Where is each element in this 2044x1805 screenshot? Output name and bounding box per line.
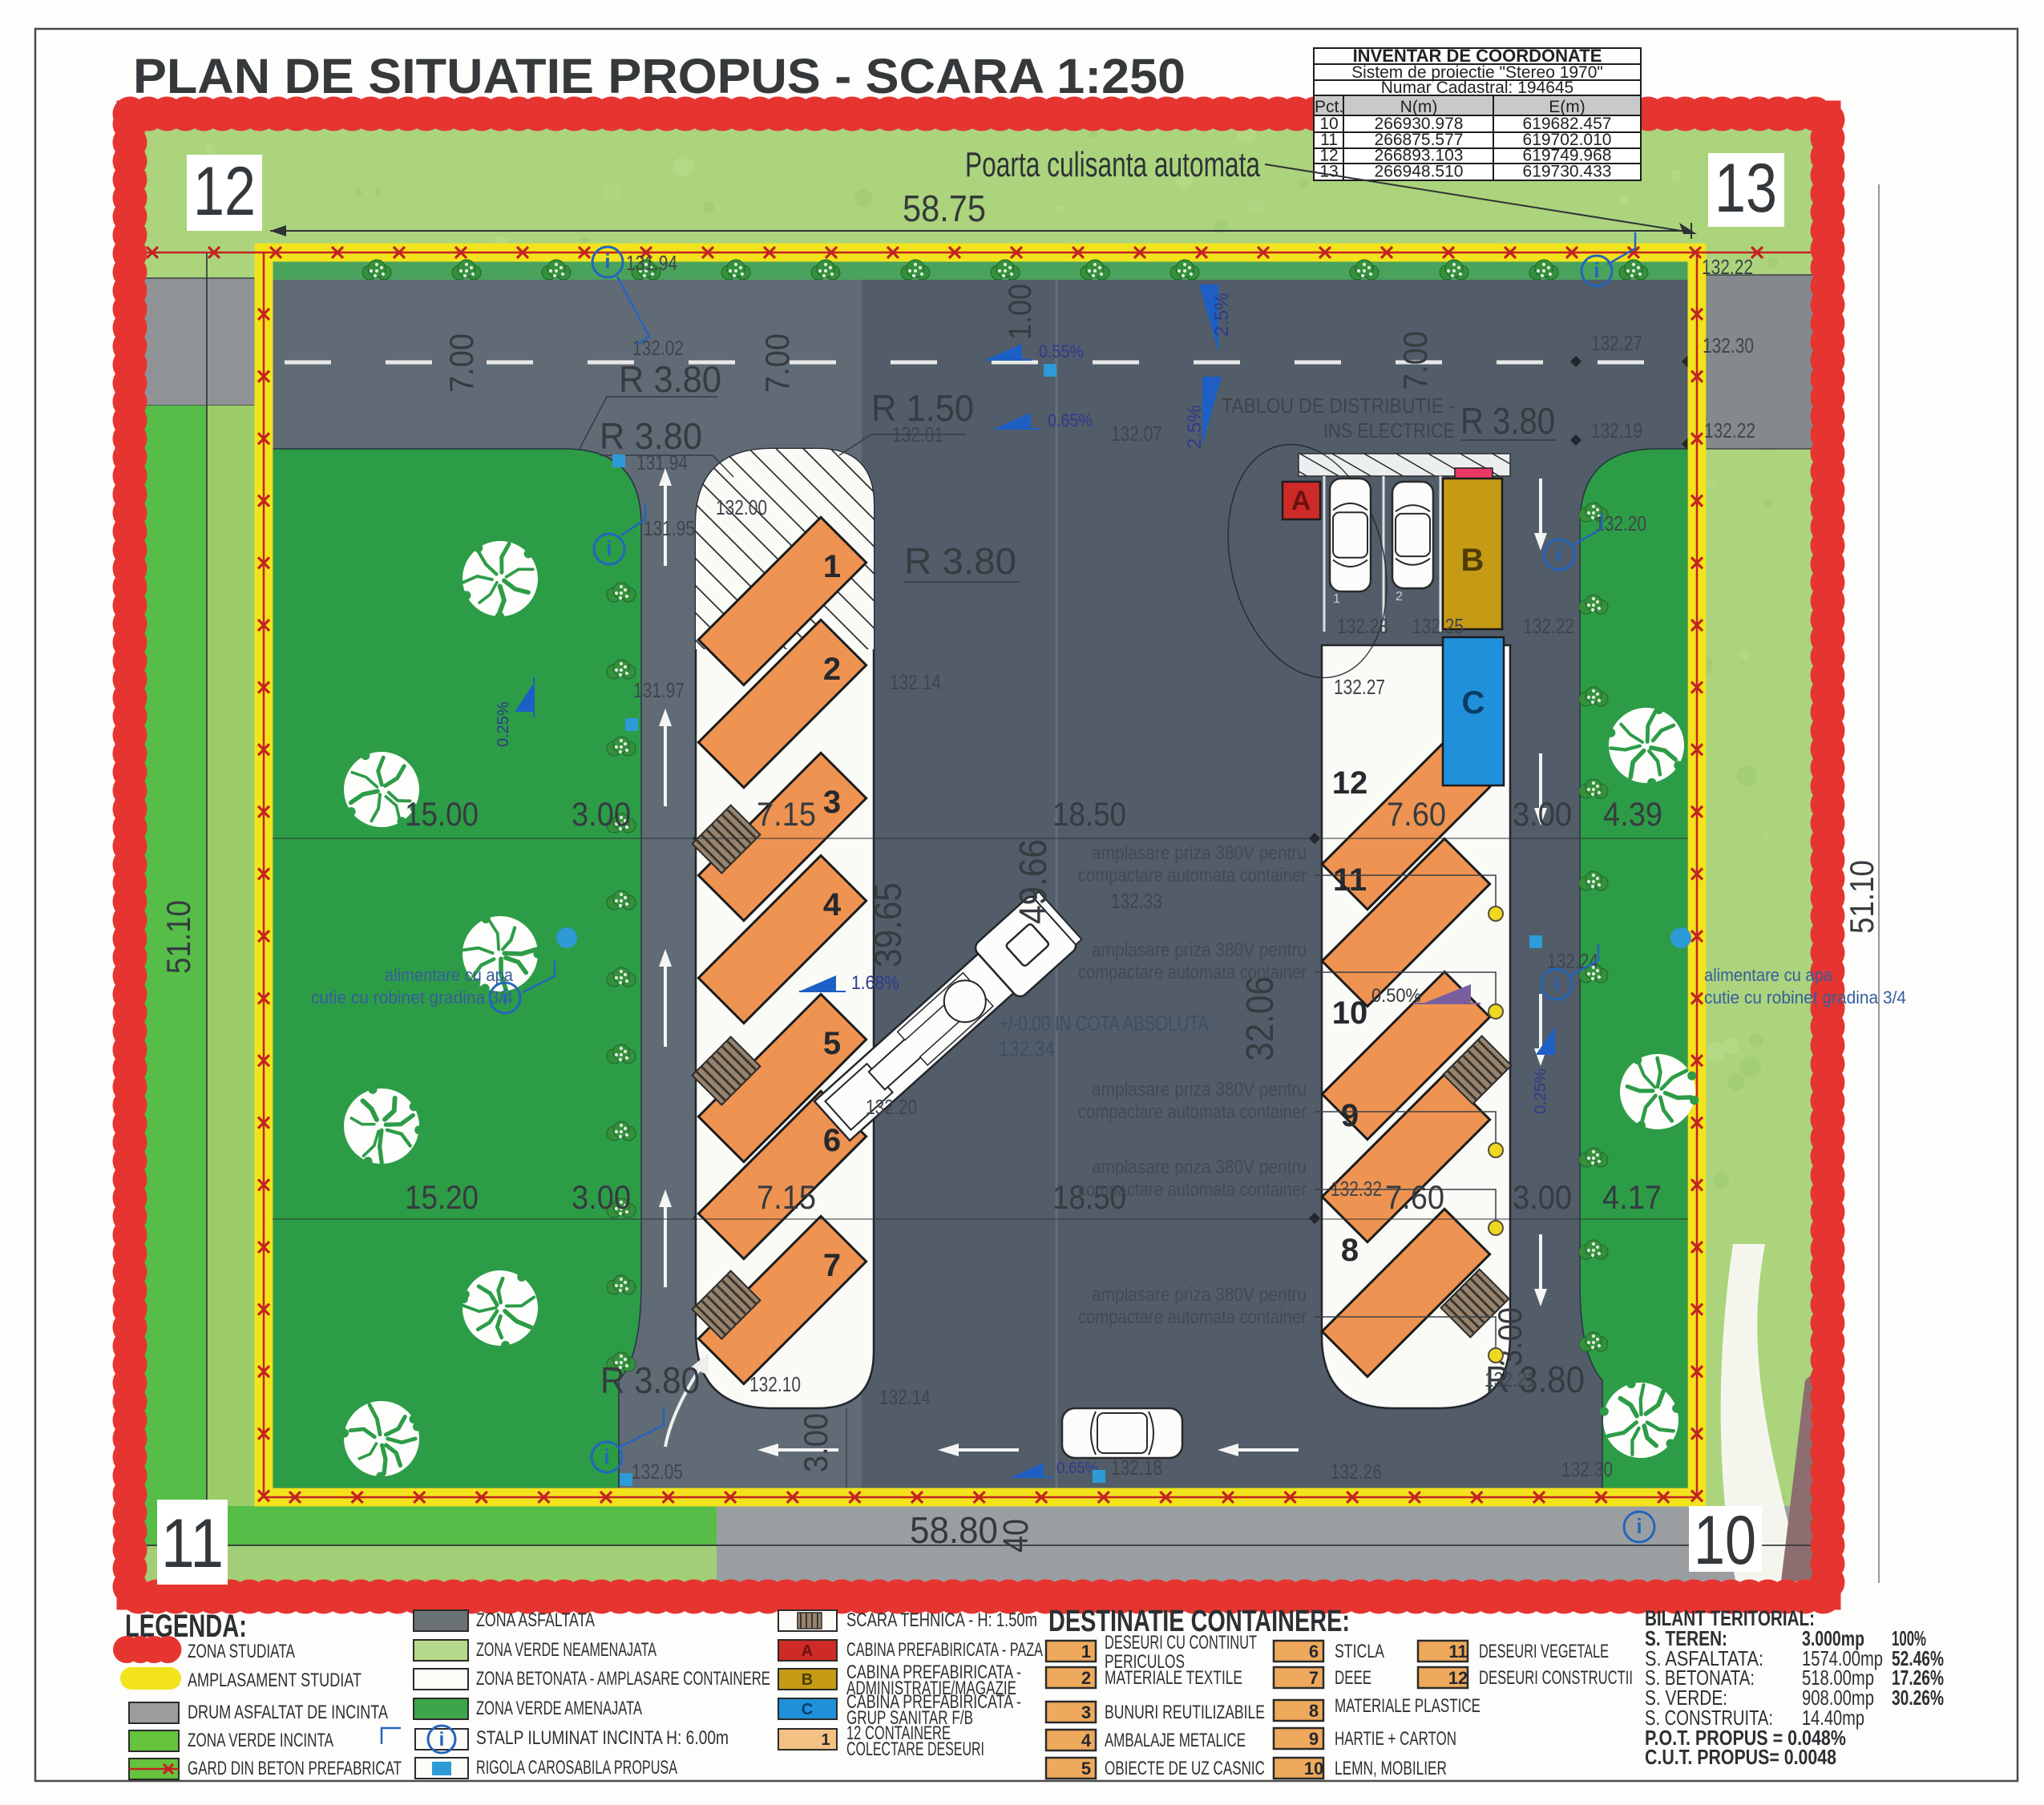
svg-text:MATERIALE TEXTILE: MATERIALE TEXTILE (1105, 1667, 1242, 1689)
svg-text:12: 12 (1448, 1668, 1468, 1688)
svg-text:+/-0.00 IN COTA ABSOLUTA: +/-0.00 IN COTA ABSOLUTA (999, 1011, 1209, 1036)
svg-text:compactare automata container: compactare automata container (1078, 1179, 1307, 1201)
svg-text:2: 2 (1081, 1668, 1091, 1688)
svg-text:ZONA BETONATA - AMPLASARE CONT: ZONA BETONATA - AMPLASARE CONTAINERE (476, 1668, 770, 1690)
svg-text:compactare automata container: compactare automata container (1078, 962, 1307, 983)
svg-text:alimentare cu apa: alimentare cu apa (1704, 965, 1833, 985)
svg-text:7.15: 7.15 (757, 795, 816, 833)
svg-text:CABINA PREFABIRICATA - PAZA: CABINA PREFABIRICATA - PAZA (846, 1639, 1043, 1661)
svg-text:0.65%: 0.65% (1056, 1460, 1098, 1477)
svg-text:R 3.80: R 3.80 (1460, 400, 1555, 442)
svg-text:OBIECTE DE UZ CASNIC: OBIECTE DE UZ CASNIC (1105, 1758, 1265, 1779)
svg-text:RIGOLA CAROSABILA PROPUSA: RIGOLA CAROSABILA PROPUSA (476, 1757, 677, 1779)
svg-text:COLECTARE DESEURI: COLECTARE DESEURI (846, 1738, 984, 1760)
svg-text:0.25%: 0.25% (1532, 1068, 1549, 1114)
svg-text:7.00: 7.00 (1396, 331, 1434, 390)
svg-text:B: B (1461, 543, 1485, 578)
svg-text:7.15: 7.15 (757, 1178, 816, 1216)
svg-text:1.68%: 1.68% (851, 972, 899, 994)
svg-text:132.33: 132.33 (1111, 889, 1162, 913)
svg-text:compactare automata container: compactare automata container (1078, 1306, 1307, 1328)
svg-text:132.02: 132.02 (632, 336, 684, 360)
svg-text:132.22: 132.22 (1702, 255, 1753, 279)
svg-text:5: 5 (823, 1026, 841, 1061)
svg-text:cutie cu robinet gradina 3/4: cutie cu robinet gradina 3/4 (1704, 987, 1906, 1007)
svg-text:7.60: 7.60 (1387, 795, 1446, 833)
svg-text:1: 1 (1333, 592, 1340, 606)
svg-text:LEMN, MOBILIER: LEMN, MOBILIER (1335, 1758, 1447, 1779)
svg-text:132.05: 132.05 (632, 1460, 683, 1484)
svg-text:ZONA ASFALTATA: ZONA ASFALTATA (476, 1609, 595, 1631)
svg-text:132.22: 132.22 (1523, 614, 1574, 638)
svg-text:13: 13 (1715, 150, 1777, 227)
svg-text:amplasare priza 380V pentru: amplasare priza 380V pentru (1092, 939, 1307, 961)
svg-text:132.19: 132.19 (1591, 418, 1642, 442)
svg-text:A: A (1291, 486, 1311, 516)
svg-text:R 3.80: R 3.80 (619, 358, 721, 400)
svg-text:15.20: 15.20 (405, 1178, 479, 1216)
svg-text:cutie cu robinet gradina 3/4: cutie cu robinet gradina 3/4 (311, 987, 513, 1007)
svg-text:12: 12 (193, 153, 256, 230)
svg-text:B: B (802, 1671, 813, 1689)
svg-text:R 3.80: R 3.80 (904, 540, 1016, 582)
svg-text:1: 1 (821, 1731, 830, 1749)
svg-text:DRUM ASFALTAT DE INCINTA: DRUM ASFALTAT DE INCINTA (188, 1702, 388, 1723)
svg-text:amplasare priza 380V pentru: amplasare priza 380V pentru (1092, 1157, 1307, 1178)
svg-text:10: 10 (1304, 1759, 1323, 1779)
svg-text:4: 4 (1081, 1730, 1092, 1750)
svg-text:10: 10 (1332, 995, 1368, 1031)
svg-text:4.39: 4.39 (1603, 795, 1662, 833)
svg-text:9: 9 (1341, 1098, 1359, 1133)
svg-text:amplasare priza 380V pentru: amplasare priza 380V pentru (1092, 1284, 1307, 1306)
svg-text:1.00: 1.00 (1003, 284, 1038, 340)
svg-text:32.06: 32.06 (1239, 976, 1282, 1061)
svg-text:2.5%: 2.5% (1184, 405, 1206, 449)
svg-text:1: 1 (823, 549, 841, 584)
svg-text:131.94: 131.94 (626, 251, 677, 275)
svg-text:132.30: 132.30 (1561, 1457, 1613, 1481)
svg-text:DEEE: DEEE (1335, 1667, 1371, 1689)
svg-text:3.00: 3.00 (1513, 1178, 1572, 1216)
svg-text:BUNURI REUTILIZABILE: BUNURI REUTILIZABILE (1105, 1702, 1265, 1723)
svg-text:compactare automata container: compactare automata container (1078, 865, 1307, 886)
svg-text:131.94: 131.94 (636, 450, 688, 474)
svg-text:E(m): E(m) (1549, 98, 1586, 116)
svg-text:3.00: 3.00 (1513, 795, 1572, 833)
svg-text:HARTIE + CARTON: HARTIE + CARTON (1335, 1728, 1456, 1750)
svg-text:8: 8 (1341, 1233, 1359, 1268)
svg-text:132.34: 132.34 (999, 1036, 1055, 1061)
svg-text:266948.510: 266948.510 (1375, 162, 1464, 180)
svg-text:3.00: 3.00 (572, 795, 631, 833)
svg-text:i: i (1556, 542, 1561, 566)
svg-text:12: 12 (1332, 765, 1368, 801)
svg-text:619730.433: 619730.433 (1523, 162, 1612, 180)
svg-text:4.17: 4.17 (1602, 1178, 1662, 1216)
svg-text:15.00: 15.00 (405, 795, 479, 833)
svg-text:132.18: 132.18 (1111, 1456, 1162, 1480)
svg-text:1: 1 (1081, 1641, 1091, 1662)
svg-text:132.10: 132.10 (749, 1372, 801, 1396)
svg-text:alimentare cu apa: alimentare cu apa (385, 965, 514, 985)
svg-text:3.00: 3.00 (572, 1178, 631, 1216)
svg-text:amplasare priza 380V pentru: amplasare priza 380V pentru (1092, 1079, 1307, 1100)
svg-text:Poarta culisanta automata: Poarta culisanta automata (965, 145, 1260, 184)
svg-text:DESEURI CU CONTINUT: DESEURI CU CONTINUT (1105, 1632, 1257, 1654)
svg-text:58.75: 58.75 (903, 188, 986, 229)
svg-text:MATERIALE PLASTICE: MATERIALE PLASTICE (1335, 1695, 1480, 1717)
svg-text:STICLA: STICLA (1335, 1641, 1384, 1662)
svg-text:132.14: 132.14 (879, 1385, 931, 1409)
svg-text:INS ELECTRICE: INS ELECTRICE (1323, 418, 1455, 442)
svg-text:i: i (1553, 971, 1559, 995)
svg-text:30.26%: 30.26% (1892, 1686, 1944, 1710)
svg-text:131.97: 131.97 (633, 678, 685, 702)
svg-text:40: 40 (996, 1519, 1036, 1553)
svg-text:0.65%: 0.65% (1048, 410, 1093, 430)
svg-text:132.14: 132.14 (890, 670, 941, 694)
svg-text:STALP ILUMINAT INCINTA H: 6.00: STALP ILUMINAT INCINTA H: 6.00m (476, 1727, 729, 1749)
svg-text:AMBALAJE METALICE: AMBALAJE METALICE (1105, 1730, 1246, 1751)
svg-text:132.27: 132.27 (1334, 675, 1385, 699)
svg-text:7.60: 7.60 (1385, 1178, 1444, 1216)
svg-text:ZONA VERDE NEAMENAJATA: ZONA VERDE NEAMENAJATA (476, 1639, 656, 1661)
svg-text:3: 3 (1081, 1702, 1091, 1722)
svg-text:132.23: 132.23 (1337, 614, 1388, 638)
svg-text:132.27: 132.27 (1591, 331, 1642, 355)
svg-text:R 3.80: R 3.80 (600, 1359, 700, 1401)
svg-text:6: 6 (1309, 1641, 1319, 1662)
svg-text:7.00: 7.00 (442, 333, 480, 393)
svg-text:i: i (604, 1444, 609, 1468)
svg-text:C: C (1462, 685, 1485, 721)
svg-text:8: 8 (1309, 1701, 1319, 1721)
svg-text:11: 11 (1333, 862, 1367, 898)
svg-text:58.80: 58.80 (910, 1509, 998, 1551)
svg-text:PLAN DE SITUATIE PROPUS - SCAR: PLAN DE SITUATIE PROPUS - SCARA 1:250 (133, 49, 1186, 103)
svg-text:2: 2 (1396, 590, 1403, 604)
svg-text:7: 7 (823, 1248, 841, 1283)
svg-text:51.10: 51.10 (1843, 860, 1880, 934)
svg-text:10: 10 (1694, 1502, 1756, 1579)
svg-text:C.U.T. PROPUS= 0.0048: C.U.T. PROPUS= 0.0048 (1645, 1745, 1836, 1769)
svg-text:i: i (439, 1729, 445, 1750)
svg-text:13: 13 (1319, 162, 1338, 180)
svg-text:49.66: 49.66 (1012, 839, 1055, 924)
svg-text:3: 3 (823, 785, 841, 820)
svg-text:i: i (606, 536, 612, 560)
svg-text:132.01: 132.01 (892, 422, 943, 446)
svg-text:131.95: 131.95 (644, 516, 695, 540)
svg-text:GARD DIN BETON PREFABRICAT: GARD DIN BETON PREFABRICAT (188, 1758, 402, 1779)
svg-text:7: 7 (1309, 1668, 1319, 1688)
svg-text:C: C (802, 1701, 813, 1718)
svg-text:132.00: 132.00 (716, 495, 767, 519)
svg-text:2.5%: 2.5% (1211, 293, 1233, 337)
svg-text:51.10: 51.10 (160, 900, 197, 974)
svg-text:132.25: 132.25 (1412, 614, 1464, 638)
svg-text:ZONA STUDIATA: ZONA STUDIATA (188, 1641, 295, 1662)
svg-text:132.20: 132.20 (1595, 511, 1646, 535)
svg-text:7.00: 7.00 (758, 333, 796, 393)
svg-text:9: 9 (1309, 1729, 1319, 1749)
svg-text:132.26: 132.26 (1331, 1460, 1382, 1484)
svg-text:39.65: 39.65 (867, 882, 910, 967)
svg-text:amplasare priza 380V pentru: amplasare priza 380V pentru (1092, 842, 1307, 864)
svg-text:i: i (1594, 258, 1599, 282)
svg-text:132.07: 132.07 (1111, 422, 1162, 446)
svg-text:Pct.: Pct. (1315, 98, 1343, 116)
svg-text:132.20: 132.20 (866, 1095, 917, 1119)
svg-text:132.32: 132.32 (1331, 1177, 1382, 1201)
svg-text:TABLOU DE DISTRIBUTIE -: TABLOU DE DISTRIBUTIE - (1222, 394, 1455, 418)
svg-text:DESEURI CONSTRUCTII: DESEURI CONSTRUCTII (1479, 1667, 1633, 1689)
svg-text:0.55%: 0.55% (1039, 341, 1084, 361)
svg-text:2: 2 (823, 652, 841, 687)
svg-text:AMPLASAMENT STUDIAT: AMPLASAMENT STUDIAT (188, 1670, 362, 1691)
svg-text:132.21: 132.21 (1485, 1367, 1536, 1391)
svg-text:i: i (604, 249, 610, 273)
svg-text:ZONA VERDE INCINTA: ZONA VERDE INCINTA (188, 1730, 333, 1751)
svg-text:N(m): N(m) (1400, 98, 1438, 116)
svg-text:4: 4 (823, 887, 842, 923)
svg-text:i: i (1636, 1514, 1642, 1538)
svg-text:3.00: 3.00 (797, 1413, 834, 1472)
svg-text:Numar Cadastral: 194645: Numar Cadastral: 194645 (1381, 79, 1573, 97)
svg-text:0.25%: 0.25% (495, 701, 512, 747)
svg-text:132.22: 132.22 (1704, 418, 1755, 442)
svg-text:11: 11 (161, 1505, 224, 1582)
svg-text:compactare automata container: compactare automata container (1078, 1101, 1307, 1123)
svg-text:ZONA VERDE AMENAJATA: ZONA VERDE AMENAJATA (476, 1698, 642, 1719)
svg-text:5: 5 (1081, 1759, 1091, 1779)
svg-text:DESEURI VEGETALE: DESEURI VEGETALE (1479, 1641, 1609, 1662)
svg-text:132.30: 132.30 (1703, 333, 1754, 357)
svg-text:A: A (802, 1642, 813, 1660)
svg-text:11: 11 (1448, 1641, 1467, 1662)
svg-text:SCARA TEHNICA - H: 1.50m: SCARA TEHNICA - H: 1.50m (846, 1609, 1037, 1631)
svg-text:18.50: 18.50 (1052, 795, 1126, 833)
